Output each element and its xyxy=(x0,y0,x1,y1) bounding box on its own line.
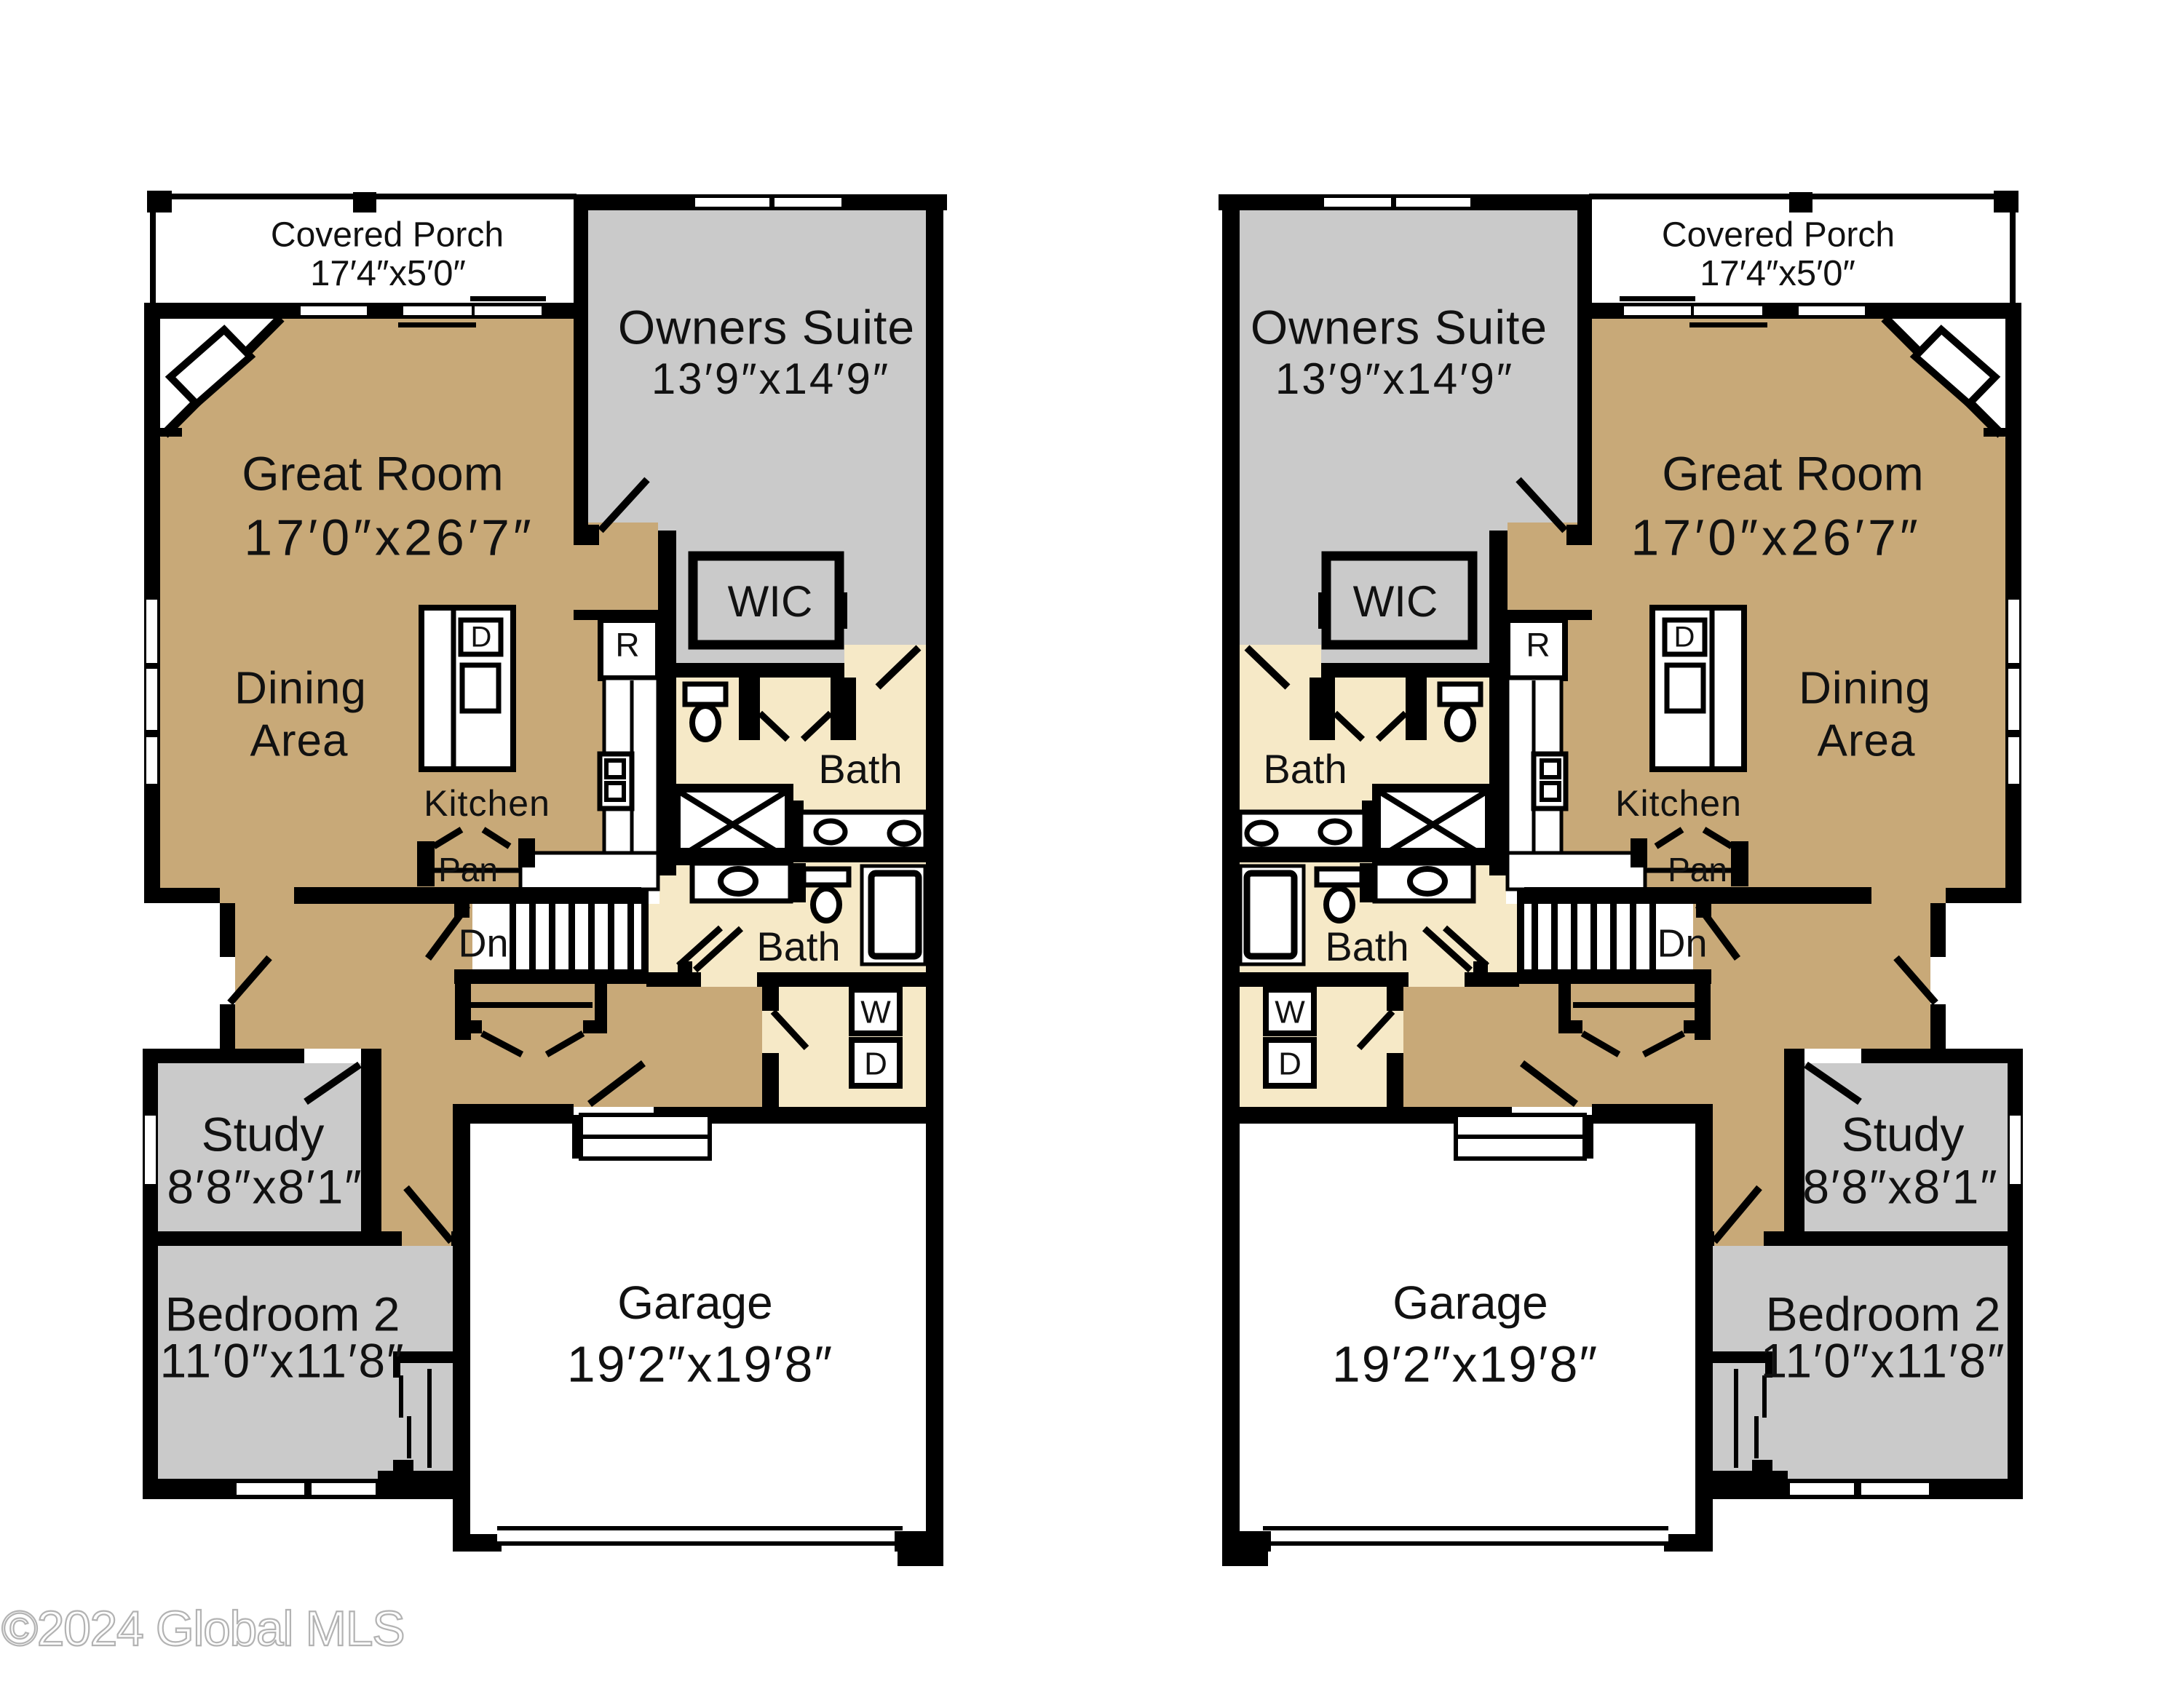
svg-text:Garage: Garage xyxy=(1392,1276,1548,1329)
svg-text:17′4″x5′0″: 17′4″x5′0″ xyxy=(1700,254,1855,293)
svg-text:Kitchen: Kitchen xyxy=(1615,783,1742,824)
svg-text:11′0″x11′8″: 11′0″x11′8″ xyxy=(160,1333,405,1387)
svg-text:WIC: WIC xyxy=(1353,577,1438,626)
svg-text:D: D xyxy=(1278,1046,1302,1082)
svg-text:Bath: Bath xyxy=(1325,923,1409,969)
svg-text:13′9″x14′9″: 13′9″x14′9″ xyxy=(1275,354,1514,403)
svg-text:Bath: Bath xyxy=(1263,746,1347,792)
svg-text:17′4″x5′0″: 17′4″x5′0″ xyxy=(310,254,466,293)
svg-text:W: W xyxy=(860,995,891,1030)
svg-text:Pan: Pan xyxy=(438,851,498,889)
svg-text:Bath: Bath xyxy=(818,746,902,792)
svg-text:13′9″x14′9″: 13′9″x14′9″ xyxy=(651,354,890,403)
svg-text:Bedroom 2: Bedroom 2 xyxy=(165,1287,400,1340)
svg-text:8′8″x8′1″: 8′8″x8′1″ xyxy=(167,1159,362,1213)
svg-text:Great Room: Great Room xyxy=(242,446,503,500)
svg-text:Study: Study xyxy=(1842,1107,1965,1161)
svg-text:Kitchen: Kitchen xyxy=(424,783,550,824)
svg-text:17′0″x26′7″: 17′0″x26′7″ xyxy=(244,509,534,565)
svg-text:19′2″x19′8″: 19′2″x19′8″ xyxy=(567,1335,833,1392)
svg-text:©2024 Global MLS: ©2024 Global MLS xyxy=(1,1601,404,1656)
svg-text:Area: Area xyxy=(1818,715,1916,766)
svg-text:D: D xyxy=(864,1046,887,1082)
svg-text:R: R xyxy=(615,626,639,664)
svg-text:Pan: Pan xyxy=(1668,851,1727,889)
svg-text:Study: Study xyxy=(202,1107,325,1161)
svg-text:R: R xyxy=(1526,626,1550,664)
svg-text:Area: Area xyxy=(250,715,349,766)
svg-text:Dining: Dining xyxy=(234,663,367,713)
svg-text:Garage: Garage xyxy=(617,1276,772,1329)
svg-text:D: D xyxy=(1674,621,1695,654)
svg-text:W: W xyxy=(1275,995,1305,1030)
svg-text:Bath: Bath xyxy=(756,923,840,969)
svg-text:Dining: Dining xyxy=(1799,663,1931,713)
svg-text:Great Room: Great Room xyxy=(1662,446,1923,500)
svg-text:Bedroom 2: Bedroom 2 xyxy=(1766,1287,2001,1340)
svg-text:Owners Suite: Owners Suite xyxy=(1251,300,1548,354)
svg-text:D: D xyxy=(471,621,492,654)
svg-text:19′2″x19′8″: 19′2″x19′8″ xyxy=(1332,1335,1598,1392)
svg-text:11′0″x11′8″: 11′0″x11′8″ xyxy=(1761,1333,2006,1387)
svg-text:Covered Porch: Covered Porch xyxy=(1662,216,1895,255)
svg-text:Dn: Dn xyxy=(458,921,508,965)
svg-text:17′0″x26′7″: 17′0″x26′7″ xyxy=(1631,509,1921,565)
svg-text:WIC: WIC xyxy=(728,577,813,626)
svg-text:Dn: Dn xyxy=(1657,921,1707,965)
svg-text:Covered Porch: Covered Porch xyxy=(271,216,504,255)
svg-text:Owners Suite: Owners Suite xyxy=(618,300,915,354)
svg-text:8′8″x8′1″: 8′8″x8′1″ xyxy=(1802,1159,1998,1213)
